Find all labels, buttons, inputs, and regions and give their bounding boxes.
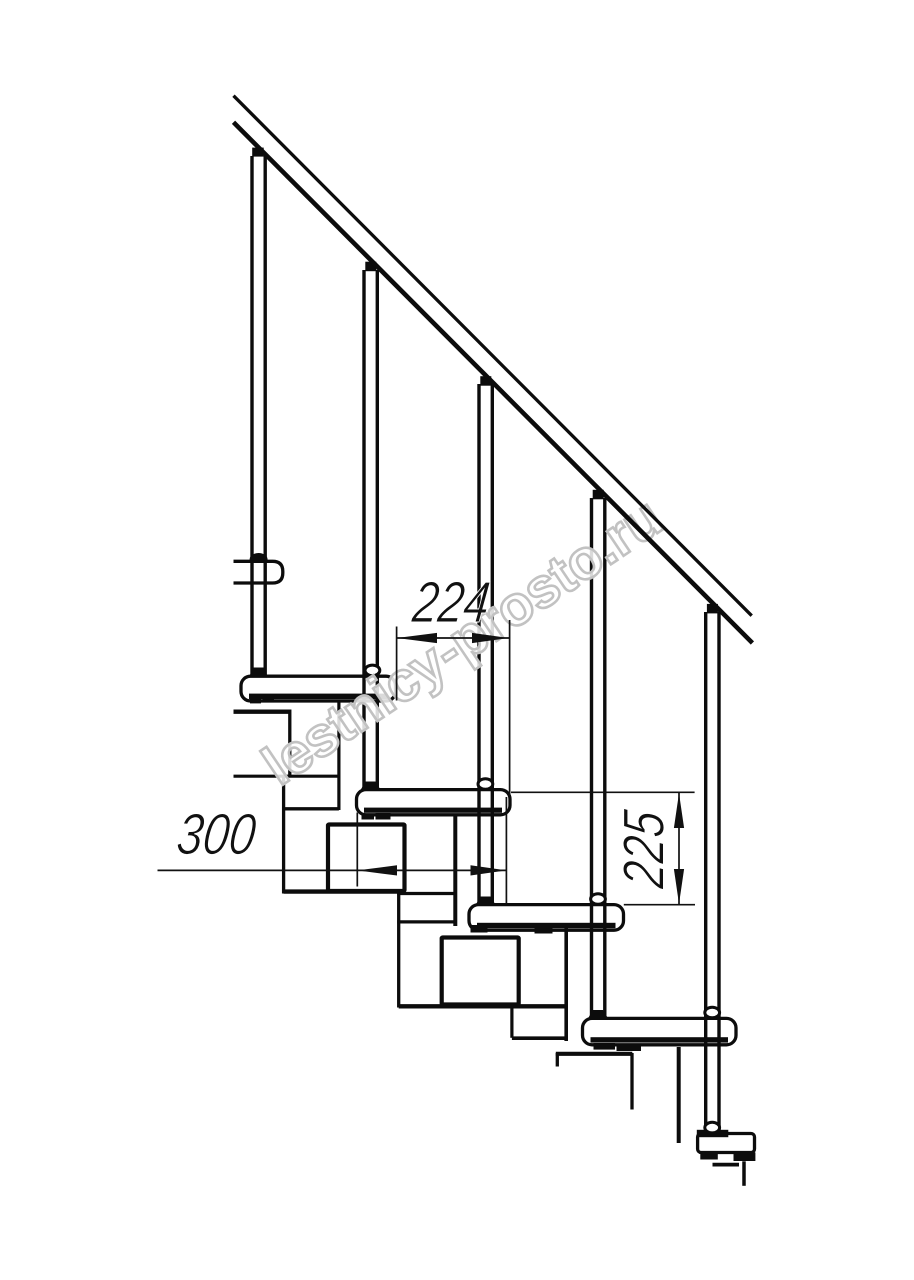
svg-text:224: 224 — [409, 570, 494, 635]
svg-text:225: 225 — [612, 807, 677, 892]
svg-text:lestnicy-prosto.ru: lestnicy-prosto.ru — [251, 485, 673, 797]
svg-text:300: 300 — [173, 802, 259, 867]
